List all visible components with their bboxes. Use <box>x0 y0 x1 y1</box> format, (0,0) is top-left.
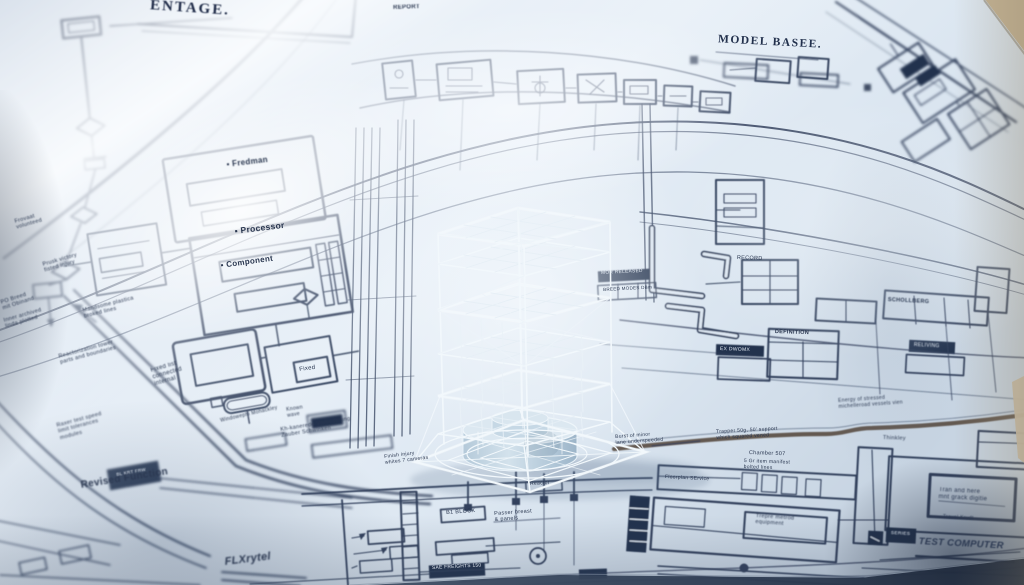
blueprint-graphic <box>0 0 1024 585</box>
blueprint-photo-scene: ENTAGE. MODEL BASEE. ▪ Fredman▪ Processo… <box>0 0 1024 585</box>
